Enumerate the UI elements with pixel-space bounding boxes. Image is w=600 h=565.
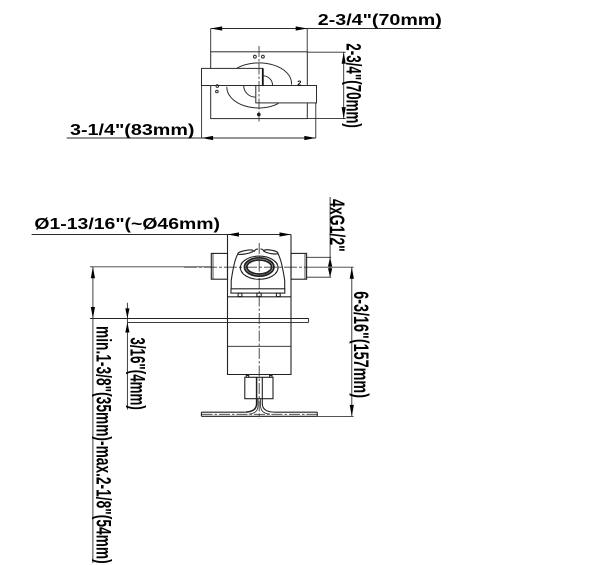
svg-text:Ø1-13/16"(~Ø46mm): Ø1-13/16"(~Ø46mm): [34, 215, 220, 232]
svg-text:2: 2: [297, 78, 301, 87]
svg-text:6-3/16"(157mm): 6-3/16"(157mm): [350, 291, 375, 398]
svg-text:3-1/4"(83mm): 3-1/4"(83mm): [70, 121, 194, 138]
svg-text:2-3/4"(70mm): 2-3/4"(70mm): [342, 43, 366, 128]
svg-text:4xG1/2": 4xG1/2": [325, 199, 349, 252]
svg-text:3/16"(4mm): 3/16"(4mm): [125, 337, 149, 409]
svg-text:min.1-3/8"(35mm)-max.2-1/8"(54: min.1-3/8"(35mm)-max.2-1/8"(54mm): [92, 326, 116, 564]
svg-text:2-3/4"(70mm): 2-3/4"(70mm): [318, 11, 442, 28]
